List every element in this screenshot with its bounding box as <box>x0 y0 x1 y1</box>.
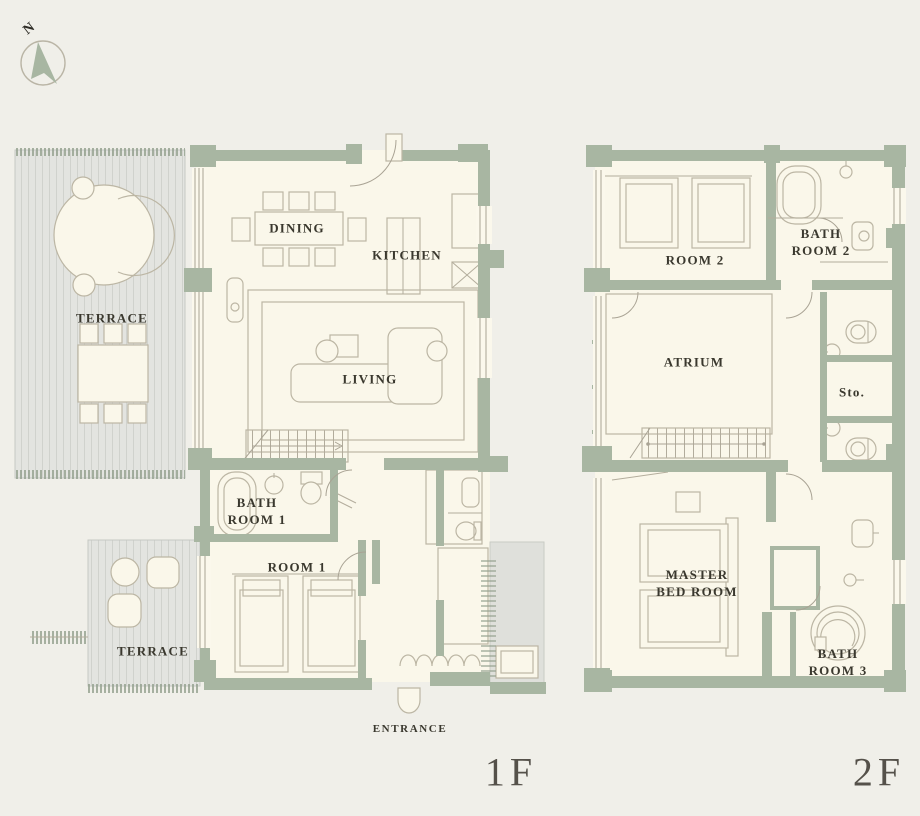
beds-room2 <box>604 176 752 248</box>
terrace-lower-label: TERRACE <box>117 644 189 661</box>
entrance-door <box>398 688 420 713</box>
living-label: LIVING <box>343 372 398 389</box>
master-bedroom-label: MASTER BED ROOM <box>656 567 737 601</box>
floor-plan-page: N TERRACE DINING KITCHEN LIVING BATH ROO… <box>0 0 920 816</box>
terrace-table <box>78 324 148 423</box>
dining-label: DINING <box>269 221 325 238</box>
floor1-title: 1F <box>485 749 537 796</box>
staircase-2f <box>630 428 770 458</box>
compass-icon <box>21 41 65 85</box>
terrace-lower-deck <box>30 540 200 693</box>
kitchen-label: KITCHEN <box>372 248 442 265</box>
bathroom1-label: BATH ROOM 1 <box>228 495 287 529</box>
floor-plan-2f <box>582 145 906 692</box>
atrium-label: ATRIUM <box>664 355 724 372</box>
staircase-1f <box>242 430 348 462</box>
room1-label: ROOM 1 <box>268 560 327 577</box>
floor2-title: 2F <box>853 749 905 796</box>
entrance-label: ENTRANCE <box>373 722 448 736</box>
bathroom3-label: BATH ROOM 3 <box>809 646 868 680</box>
bathroom2-label: BATH ROOM 2 <box>792 226 851 260</box>
terrace-upper-label: TERRACE <box>76 311 148 328</box>
floor-plan-svg <box>0 0 920 816</box>
storage-label: Sto. <box>839 385 865 402</box>
room2-label: ROOM 2 <box>666 253 725 270</box>
